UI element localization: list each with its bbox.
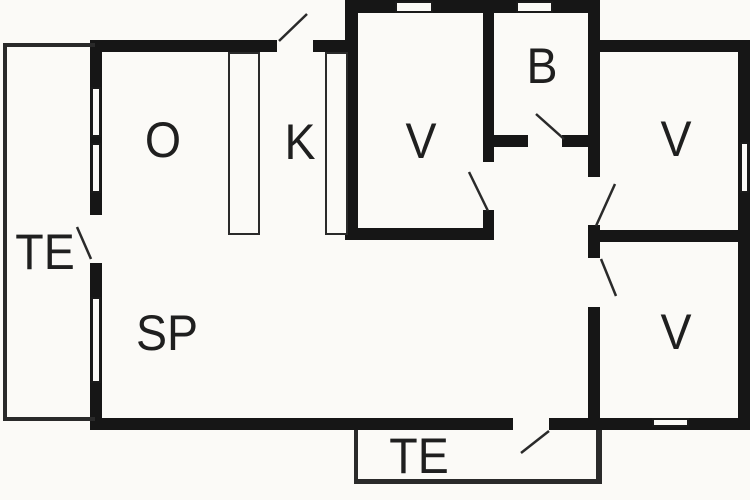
door-swing: [521, 431, 549, 453]
terrace-outline: [3, 417, 95, 421]
room-label-v-right-top: V: [660, 114, 691, 164]
room-label-o: O: [145, 115, 181, 165]
window: [91, 87, 101, 137]
kitchen-counter: [325, 52, 348, 235]
door-swing: [279, 14, 307, 41]
kitchen-counter: [228, 52, 260, 235]
terrace-outline: [354, 430, 358, 483]
wall: [90, 40, 277, 52]
room-label-k: K: [284, 117, 315, 167]
wall: [345, 0, 600, 13]
door-swing: [469, 172, 488, 211]
window: [652, 418, 689, 427]
window: [740, 142, 749, 193]
room-label-v-top: V: [405, 116, 436, 166]
wall: [90, 418, 513, 430]
wall: [483, 135, 528, 147]
terrace-outline: [3, 43, 7, 421]
window: [91, 143, 101, 193]
terrace-outline: [3, 43, 95, 47]
door-swing: [596, 184, 615, 226]
floor-plan: O K V B V V SP TE TE: [0, 0, 750, 500]
door-swing: [536, 114, 564, 139]
wall: [588, 40, 750, 52]
room-label-sp: SP: [136, 308, 198, 358]
window: [395, 1, 433, 13]
window: [516, 1, 553, 13]
room-label-te-left: TE: [15, 227, 74, 277]
terrace-outline: [596, 430, 602, 483]
wall: [345, 228, 494, 240]
wall: [588, 0, 600, 177]
wall: [738, 40, 750, 430]
room-label-te-bottom: TE: [389, 431, 448, 481]
wall: [588, 307, 600, 430]
wall: [549, 418, 750, 430]
window: [91, 297, 101, 383]
room-label-b: B: [526, 41, 557, 91]
door-swing: [77, 227, 91, 259]
room-label-v-right-bottom: V: [660, 307, 691, 357]
wall: [588, 230, 750, 242]
door-swing: [601, 259, 616, 296]
